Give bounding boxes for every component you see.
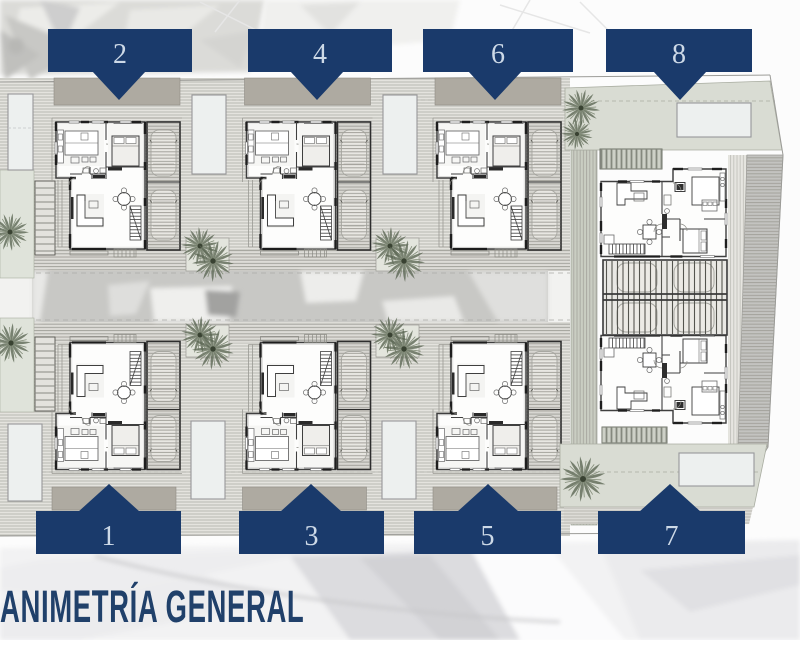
svg-text:ANIMETRÍA GENERAL: ANIMETRÍA GENERAL [0,581,304,632]
svg-text:4: 4 [313,39,327,70]
svg-text:2: 2 [113,39,127,70]
svg-text:8: 8 [672,39,686,70]
svg-text:7: 7 [665,521,679,552]
svg-text:5: 5 [481,521,495,552]
svg-text:3: 3 [305,521,319,552]
svg-text:1: 1 [102,521,116,552]
svg-text:6: 6 [491,39,505,70]
